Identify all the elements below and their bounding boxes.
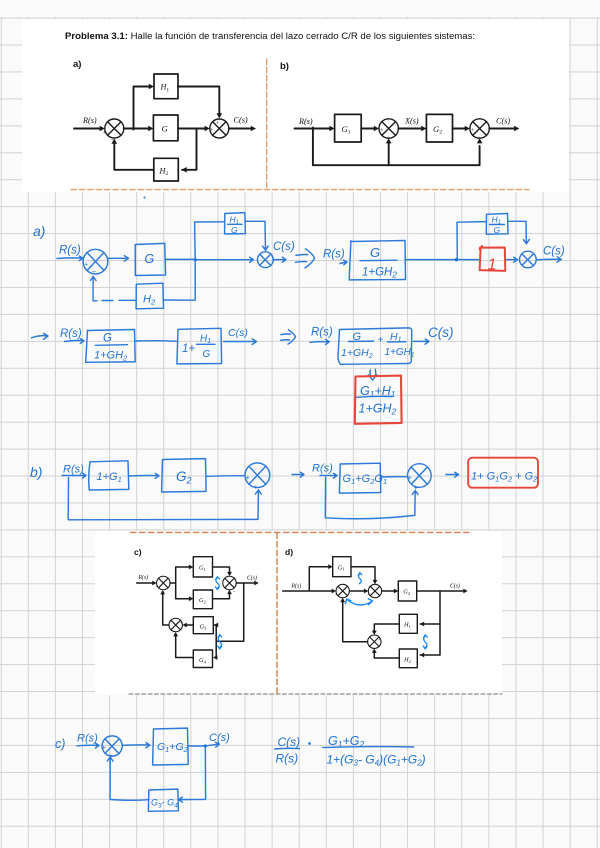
svg-text:−: − <box>232 590 235 595</box>
svg-text:+: + <box>408 473 413 482</box>
svg-text:R(s): R(s) <box>291 583 302 590</box>
svg-text:+: + <box>369 584 372 589</box>
svg-text:+: + <box>102 743 107 752</box>
svg-text:H1: H1 <box>160 83 170 94</box>
svg-text:1+GH2: 1+GH2 <box>362 267 397 280</box>
svg-text:−: − <box>173 632 176 637</box>
svg-text:1+GH2: 1+GH2 <box>94 350 128 363</box>
svg-text:+: + <box>378 335 384 346</box>
svg-text:1+ G1G2 + G2: 1+ G1G2 + G2 <box>471 471 538 484</box>
svg-text:1+GH1: 1+GH1 <box>385 347 415 359</box>
svg-text:G: G <box>145 252 155 266</box>
svg-text:a): a) <box>33 223 45 239</box>
svg-text:H1: H1 <box>200 334 211 346</box>
svg-text:H1: H1 <box>390 331 402 344</box>
svg-text:H2: H2 <box>159 166 169 177</box>
svg-text:+: + <box>180 620 183 625</box>
svg-text:R(s): R(s) <box>63 464 84 476</box>
svg-text:−: − <box>92 268 97 277</box>
svg-text:+: + <box>102 131 106 137</box>
svg-text:b): b) <box>30 464 42 480</box>
svg-text:G: G <box>370 245 380 260</box>
svg-text:G2: G2 <box>403 589 410 596</box>
svg-text:R(s): R(s) <box>276 752 299 766</box>
svg-text:1+GH2: 1+GH2 <box>359 402 397 417</box>
svg-text:R(s): R(s) <box>312 463 333 475</box>
svg-text:+: + <box>216 121 220 127</box>
svg-text:+: + <box>367 591 370 596</box>
svg-text:G: G <box>203 349 211 360</box>
svg-text:R(s): R(s) <box>60 328 82 340</box>
svg-text:G2: G2 <box>199 597 206 604</box>
svg-text:+: + <box>386 136 390 142</box>
svg-text:C(s): C(s) <box>234 116 248 125</box>
svg-text:C(s): C(s) <box>247 575 257 582</box>
svg-text:C(s): C(s) <box>228 327 248 339</box>
svg-text:G: G <box>494 225 501 235</box>
svg-text:R(s): R(s) <box>138 574 149 581</box>
svg-text:R(s): R(s) <box>77 733 98 745</box>
svg-text:b): b) <box>280 61 289 72</box>
svg-text:+: + <box>335 591 338 596</box>
svg-text:+: + <box>233 576 236 581</box>
svg-text:1+: 1+ <box>182 343 195 355</box>
svg-text:G4: G4 <box>199 657 207 664</box>
svg-text:X(s): X(s) <box>404 117 419 126</box>
svg-text:R(s): R(s) <box>59 245 81 257</box>
svg-text:G2: G2 <box>176 469 192 486</box>
svg-text:+: + <box>254 483 259 492</box>
svg-text:R(s): R(s) <box>82 116 97 125</box>
svg-text:R(s): R(s) <box>298 117 313 126</box>
svg-text:C(s): C(s) <box>273 241 295 253</box>
svg-text:C(s): C(s) <box>450 583 460 590</box>
svg-text:G: G <box>353 331 362 343</box>
svg-text:+: + <box>210 128 214 134</box>
svg-text:+: + <box>380 128 384 134</box>
svg-text:G: G <box>231 225 238 235</box>
svg-text:−: − <box>108 751 113 760</box>
svg-text:+: + <box>246 473 251 482</box>
svg-text:+: + <box>378 636 381 641</box>
svg-text:C(s): C(s) <box>543 246 565 258</box>
svg-text:c): c) <box>55 737 65 751</box>
svg-text:R(s): R(s) <box>323 249 345 261</box>
svg-text:G1: G1 <box>199 565 206 572</box>
svg-text:G1+G2G1: G1+G2G1 <box>343 473 388 486</box>
svg-text:c): c) <box>134 547 142 557</box>
svg-text:+: + <box>84 262 88 269</box>
svg-text:1: 1 <box>488 257 497 274</box>
svg-text:R(s): R(s) <box>311 327 333 339</box>
svg-text:1+GH2: 1+GH2 <box>341 347 373 360</box>
svg-text:+: + <box>477 136 481 142</box>
svg-text:C(s): C(s) <box>428 325 454 340</box>
svg-text:G3- G4: G3- G4 <box>151 798 178 810</box>
svg-text:G1: G1 <box>342 124 351 136</box>
svg-text:G: G <box>103 333 112 345</box>
svg-text:H2: H2 <box>403 656 411 663</box>
svg-text:a): a) <box>73 59 81 70</box>
svg-text:G1+G2: G1+G2 <box>157 741 189 754</box>
svg-text:G3: G3 <box>200 623 208 630</box>
svg-text:G: G <box>162 124 169 134</box>
svg-text:H1: H1 <box>403 622 411 629</box>
svg-text:+: + <box>155 583 158 588</box>
svg-text:+: + <box>414 483 419 492</box>
svg-text:1+G1: 1+G1 <box>97 471 122 484</box>
svg-text:+: + <box>471 128 475 134</box>
svg-text:−: − <box>372 649 375 654</box>
svg-text:H2: H2 <box>143 294 156 307</box>
svg-text:G2: G2 <box>433 124 442 136</box>
svg-text:G1: G1 <box>338 564 345 571</box>
svg-text:C(s): C(s) <box>209 732 230 744</box>
svg-text:1+(G3- G4)(G1+G2): 1+(G3- G4)(G1+G2) <box>327 753 426 768</box>
svg-text:C(s): C(s) <box>496 117 510 126</box>
svg-text:d): d) <box>285 547 293 557</box>
svg-text:C(s): C(s) <box>278 735 301 749</box>
